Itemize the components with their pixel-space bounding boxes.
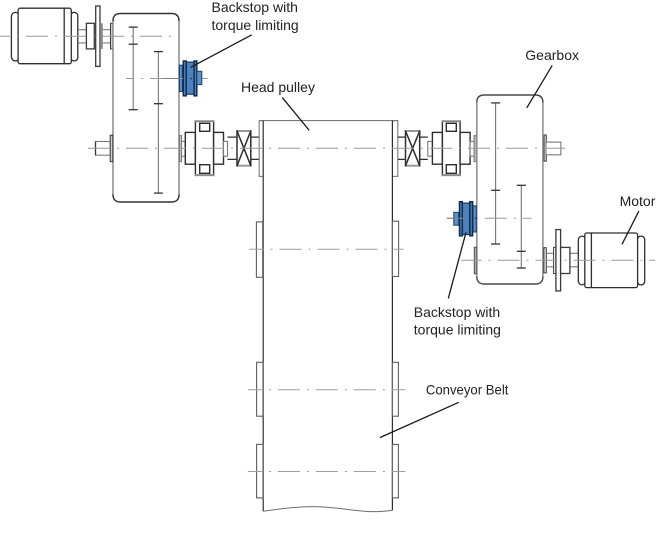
svg-text:torque limiting: torque limiting — [414, 322, 501, 338]
svg-text:Motor: Motor — [620, 193, 656, 209]
svg-text:Conveyor Belt: Conveyor Belt — [426, 382, 509, 398]
svg-text:torque limiting: torque limiting — [212, 17, 299, 33]
svg-text:Gearbox: Gearbox — [525, 47, 579, 63]
svg-text:Head pulley: Head pulley — [241, 79, 315, 95]
svg-text:Backstop with: Backstop with — [414, 304, 500, 320]
svg-text:Backstop with: Backstop with — [212, 0, 298, 15]
